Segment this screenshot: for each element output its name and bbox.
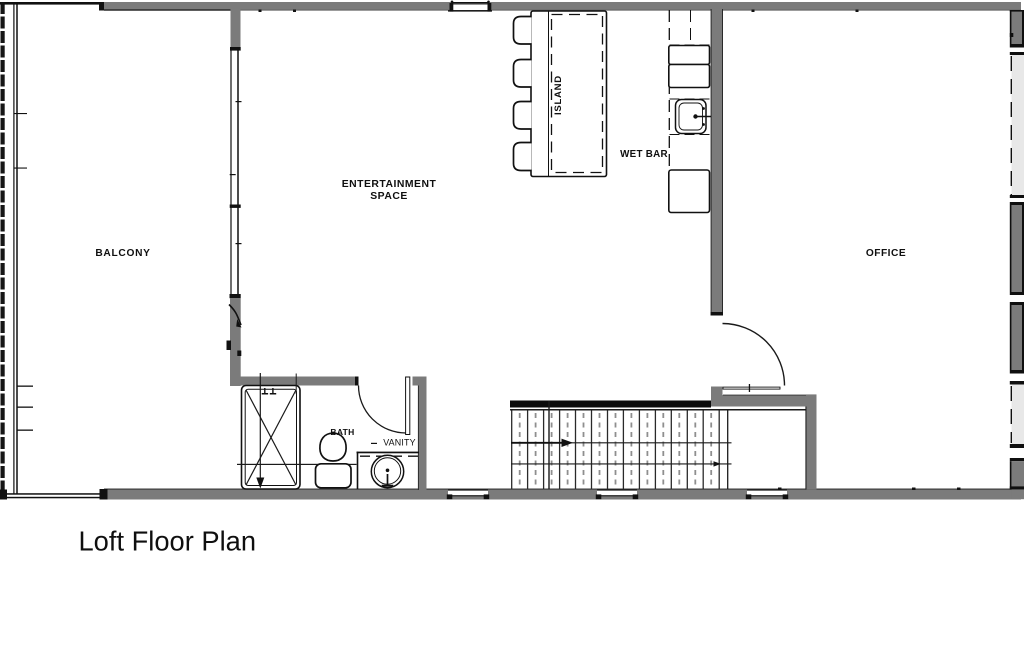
svg-text:ISLAND: ISLAND <box>553 75 564 115</box>
svg-text:ENTERTAINMENT: ENTERTAINMENT <box>342 179 437 190</box>
svg-text:WET BAR: WET BAR <box>620 149 668 160</box>
svg-text:BALCONY: BALCONY <box>95 248 150 259</box>
svg-text:OFFICE: OFFICE <box>866 248 906 259</box>
svg-text:Loft Floor Plan: Loft Floor Plan <box>79 526 257 557</box>
svg-text:VANITY: VANITY <box>383 438 416 448</box>
svg-text:BATH: BATH <box>330 427 354 437</box>
svg-text:SPACE: SPACE <box>370 191 408 202</box>
